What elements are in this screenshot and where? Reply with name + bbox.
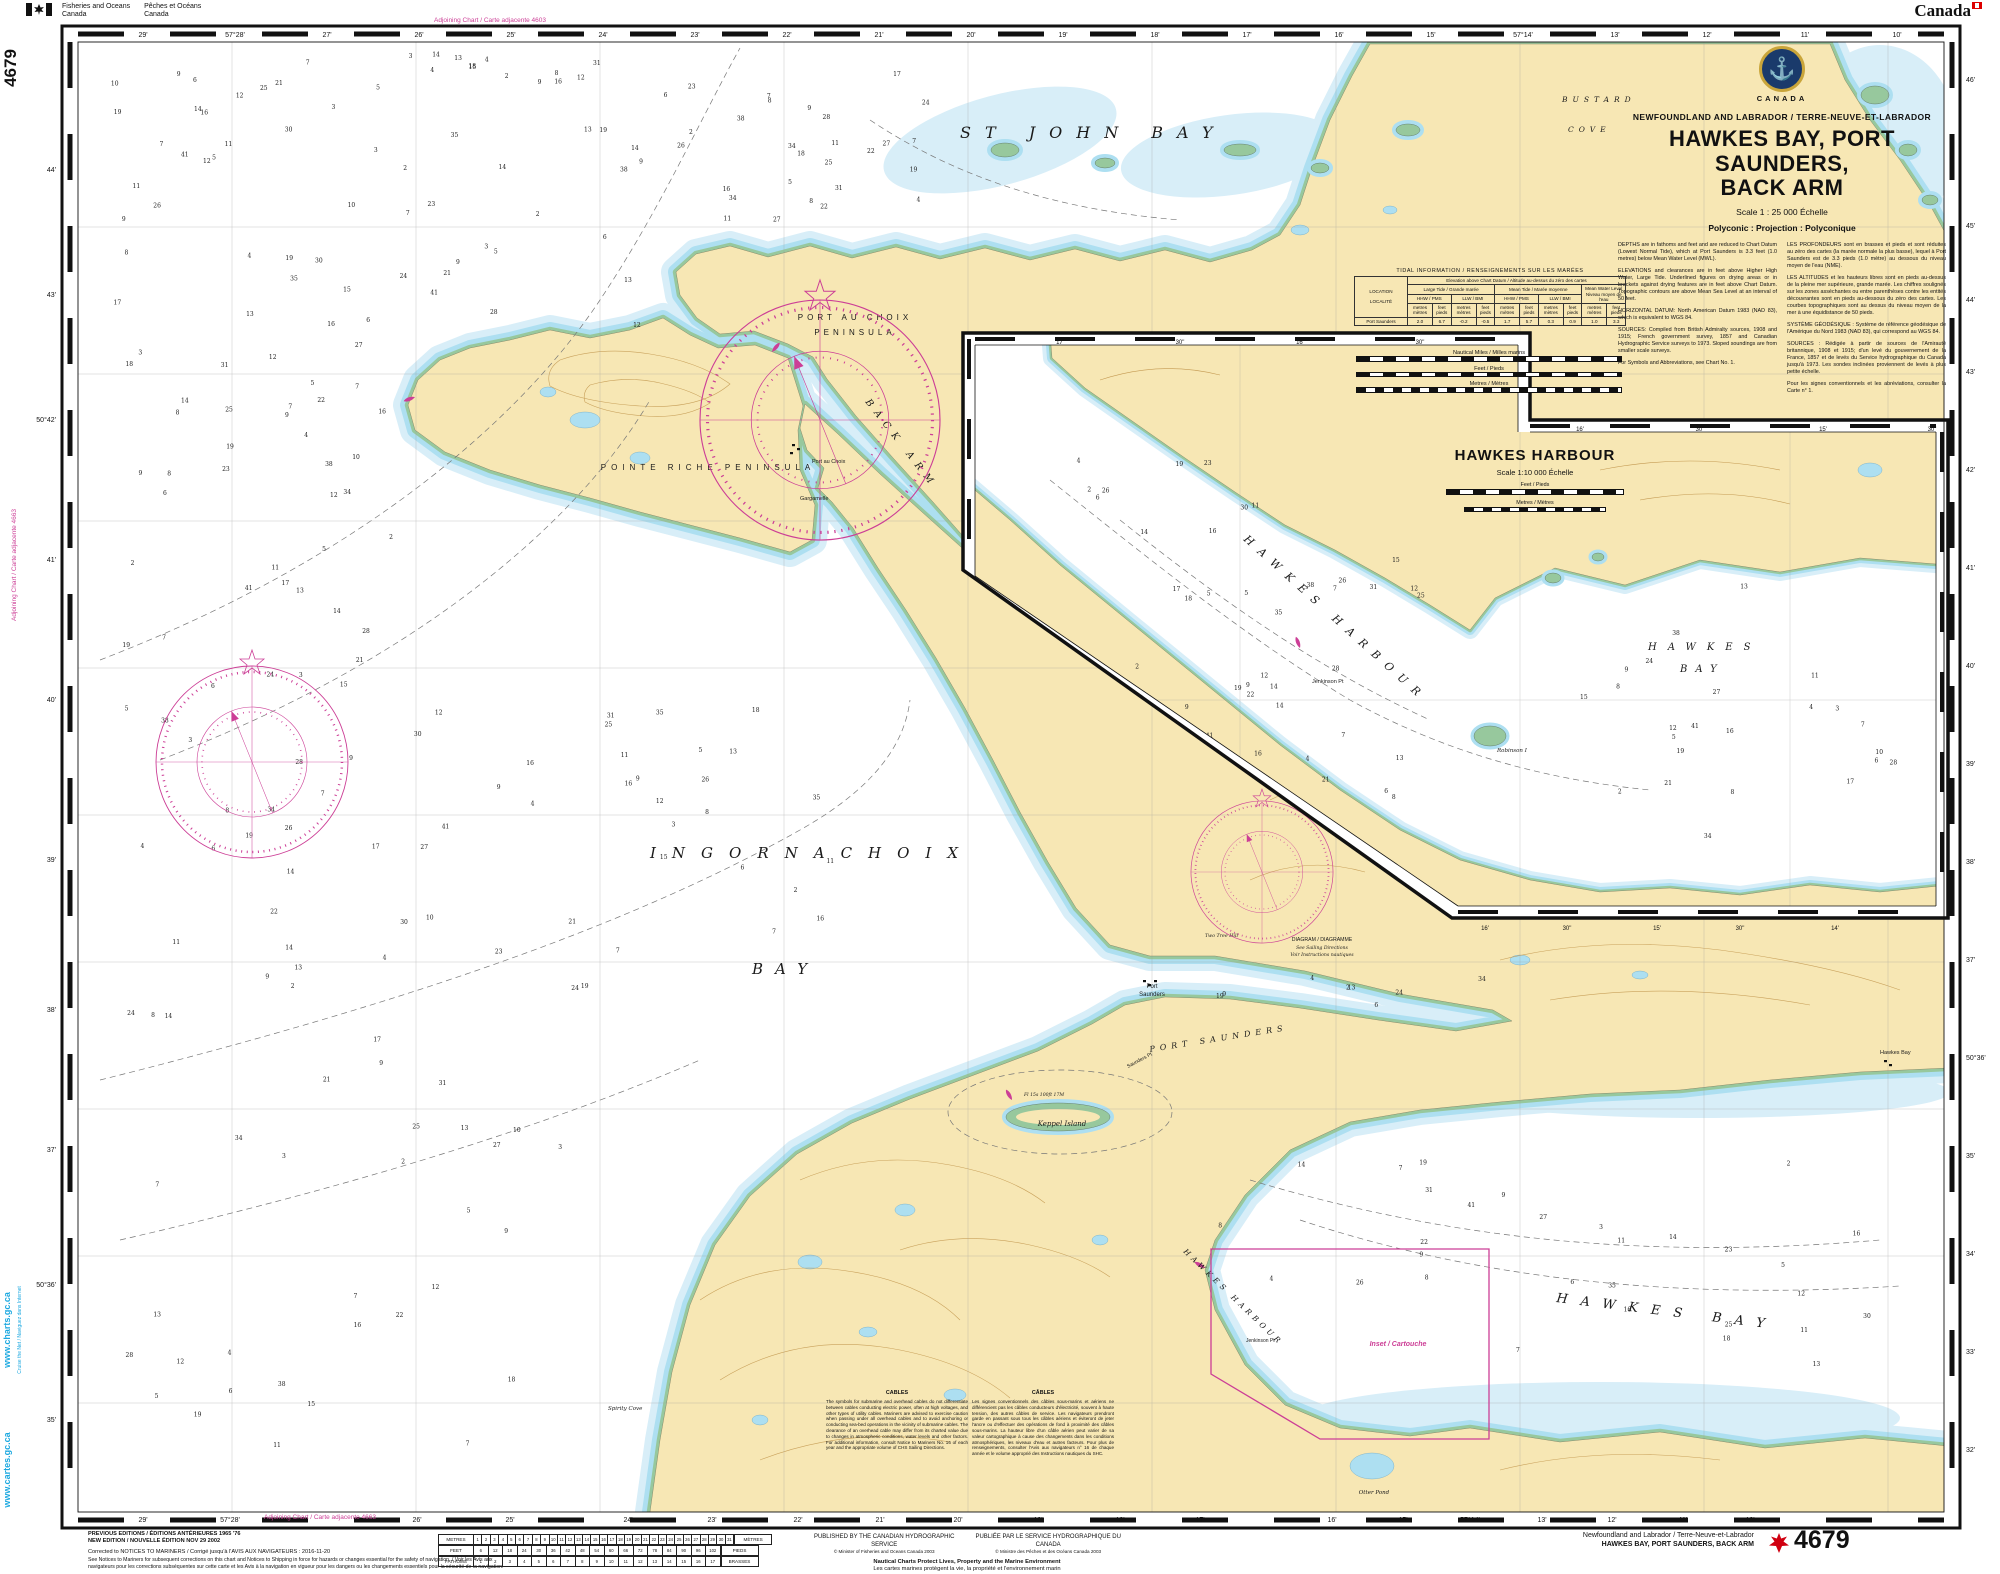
sounding: 18 <box>1723 1335 1731 1342</box>
sounding: 24 <box>1645 658 1653 665</box>
label-port: Port <box>1146 984 1157 990</box>
longitude-label: 24' <box>598 32 607 39</box>
copyright-en: © Minister of Fisheries and Oceans Canad… <box>812 1549 956 1555</box>
sounding: 7 <box>355 383 359 390</box>
conversion-value: 31 <box>726 1535 734 1544</box>
sounding: 25 <box>412 1123 420 1130</box>
tidal-value: 2.0 <box>1408 317 1433 325</box>
inset-scale: Scale 1:10 000 Échelle <box>1402 468 1668 477</box>
sounding: 14 <box>181 398 189 405</box>
sounding: 11 <box>1617 1237 1625 1244</box>
sounding: 18 <box>1184 595 1192 602</box>
sounding: 14 <box>1298 1162 1306 1169</box>
dept-name-fr: Pêches et Océans <box>144 3 201 10</box>
label-inset-jenkinson: Jenkinson Pt <box>1312 679 1344 685</box>
sounding: 27 <box>1539 1214 1547 1221</box>
sounding: 2 <box>689 129 693 136</box>
sounding: 8 <box>705 809 709 816</box>
unit-m: metres mètres <box>1495 304 1520 318</box>
sounding: 14 <box>1140 529 1148 536</box>
longitude-label: 12' <box>1607 1517 1616 1524</box>
unit-m: metres mètres <box>1538 304 1563 318</box>
longitude-label: 25' <box>506 32 515 39</box>
tidal-elevation-header: Elevation above Chart Datum / Altitude a… <box>1408 277 1626 285</box>
sounding: 11 <box>1811 673 1819 680</box>
label-otter-pond: Otter Pond <box>1359 1490 1390 1496</box>
sounding: 5 <box>1244 590 1248 597</box>
latitude-label: 41' <box>47 557 56 564</box>
tidal-location-header: LOCATIONLOCALITÉ <box>1355 277 1408 318</box>
sounding: 13 <box>1396 755 1404 762</box>
sounding: 5 <box>1207 591 1211 598</box>
sounding: 24 <box>266 672 274 679</box>
sounding: 3 <box>484 244 488 251</box>
note-symbols: For Symbols and Abbreviations, see Chart… <box>1618 360 1777 367</box>
sounding: 27 <box>420 844 428 851</box>
inset-coordinate-label: 30" <box>1736 926 1745 932</box>
sounding: 22 <box>820 204 828 211</box>
sounding: 12 <box>330 492 338 499</box>
tidal-value: 1.7 <box>1495 317 1520 325</box>
sounding: 26 <box>285 825 293 832</box>
tidal-value: 0.9 <box>1563 317 1582 325</box>
latitude-label: 39' <box>47 857 56 864</box>
conversion-value: 11 <box>619 1557 634 1566</box>
sounding: 22 <box>867 148 875 155</box>
note-depths: DEPTHS are in fathoms and feet and are r… <box>1618 242 1777 263</box>
sounding: 6 <box>1875 758 1879 765</box>
sounding: 4 <box>485 57 489 64</box>
footer-chart-number: 4679 <box>1794 1526 1850 1555</box>
conversion-value: 18 <box>503 1546 518 1555</box>
sounding: 7 <box>321 790 325 797</box>
conversion-value: 22 <box>650 1535 658 1544</box>
sounding: 7 <box>306 60 310 67</box>
sounding: 9 <box>138 470 142 477</box>
conversion-value: 5 <box>532 1557 547 1566</box>
sounding: 27 <box>1713 689 1721 696</box>
sounding: 26 <box>1102 488 1110 495</box>
tidal-value: 1.0 <box>1582 317 1607 325</box>
sounding: 7 <box>406 210 410 217</box>
longitude-label: 16' <box>1334 32 1343 39</box>
longitude-label: 26' <box>414 32 423 39</box>
dept-name-en: Fisheries and Oceans <box>62 3 130 10</box>
sounding: 6 <box>163 490 167 497</box>
sounding: 16 <box>1853 1231 1861 1238</box>
sounding: 38 <box>1672 630 1680 637</box>
sounding: 16 <box>816 915 824 922</box>
sounding: 5 <box>376 85 380 92</box>
title-country: CANADA <box>1618 94 1946 103</box>
sounding: 35 <box>451 132 459 139</box>
sounding: 3 <box>558 1144 562 1151</box>
inset-coordinate-label: 16' <box>1481 926 1489 932</box>
conversion-value: 60 <box>605 1546 620 1555</box>
sounding: 10 <box>1875 749 1883 756</box>
longitude-label: 13' <box>1537 1517 1546 1524</box>
sounding: 13 <box>153 1312 161 1319</box>
conversion-unit-label-fr: PIEDS <box>721 1545 759 1556</box>
sounding: 25 <box>260 85 268 92</box>
longitude-label: 21' <box>875 1517 884 1524</box>
conversion-unit-label: FATHOMS <box>438 1556 474 1567</box>
conversion-value: 6 <box>547 1557 562 1566</box>
sounding: 4 <box>248 252 252 259</box>
note-signes: Pour les signes conventionnels et les ab… <box>1787 381 1946 395</box>
latitude-label: 44' <box>47 167 56 174</box>
tidal-mwl: Mean Water LevelNiveau moyen de l'eau <box>1582 285 1626 304</box>
longitude-label: 21' <box>874 32 883 39</box>
sounding: 11 <box>1252 502 1260 509</box>
inset-coordinate-label: 30" <box>1696 427 1705 433</box>
sounding: 4 <box>141 843 145 850</box>
sounding: 18 <box>797 151 805 158</box>
longitude-label: 57°14' <box>1513 31 1533 39</box>
conversion-value: 16 <box>692 1557 707 1566</box>
sounding: 7 <box>466 1440 470 1447</box>
tidal-hhw-1: HHW / PMS <box>1408 294 1452 303</box>
sounding: 14 <box>333 608 341 615</box>
sounding: 41 <box>442 823 450 830</box>
longitude-label: 23' <box>690 32 699 39</box>
sounding: 28 <box>126 1352 134 1359</box>
sounding: 5 <box>1781 1262 1785 1269</box>
tidal-value: 3.3 <box>1607 317 1626 325</box>
sounding: 17 <box>1846 778 1854 785</box>
conversion-value: 12 <box>634 1557 649 1566</box>
sounding: 24 <box>400 273 408 280</box>
sounding: 9 <box>1502 1192 1506 1199</box>
sounding: 12 <box>236 93 244 100</box>
inset-title-block: HAWKES HARBOUR Scale 1:10 000 Échelle Fe… <box>1402 447 1668 512</box>
label-pac-peninsula-2: PENINSULA <box>814 328 895 337</box>
scale-bars: Nautical Miles / Milles marins Feet / Pi… <box>1356 346 1622 393</box>
cables-title-en: CABLES <box>826 1390 968 1397</box>
canada-flag-icon <box>26 3 52 16</box>
sounding: 13 <box>624 277 632 284</box>
sounding: 28 <box>490 309 498 316</box>
footer-chart-id: Newfoundland and Labrador / Terre-Neuve-… <box>1430 1531 1754 1549</box>
sounding: 16 <box>1726 728 1734 735</box>
label-inset-bay-2: BAY <box>1679 664 1725 675</box>
border-labels-left: 44'43'50°42'41'40'39'38'37'50°36'35' <box>36 167 56 1424</box>
sounding: 17 <box>373 1037 381 1044</box>
sounding: 15 <box>1580 694 1588 701</box>
latitude-label: 40' <box>1966 663 1975 670</box>
sounding: 27 <box>773 216 781 223</box>
sounding: 16 <box>327 321 335 328</box>
sounding: 12 <box>633 322 641 329</box>
sounding: 11 <box>724 216 732 223</box>
latitude-label: 32' <box>1966 1447 1975 1454</box>
dept-name-fr-2: Canada <box>144 11 169 18</box>
sounding: 14 <box>631 145 639 152</box>
sounding: 5 <box>788 179 792 186</box>
conversion-value: 11 <box>558 1535 566 1544</box>
sounding: 30 <box>1240 504 1248 511</box>
sounding: 34 <box>1478 976 1486 983</box>
motto-fr: Les cartes marines protègent la vie, la … <box>812 1566 1122 1573</box>
sounding: 12 <box>577 74 585 81</box>
sounding: 26 <box>701 777 709 784</box>
sounding: 11 <box>271 564 279 571</box>
sounding: 8 <box>124 250 128 257</box>
longitude-label: 16' <box>1327 1517 1336 1524</box>
sounding: 35 <box>290 276 298 283</box>
sounding: 15 <box>1392 557 1400 564</box>
conversion-value: 13 <box>648 1557 663 1566</box>
label-inset-robinson: Robinson I <box>1496 748 1528 754</box>
conversion-value: 17 <box>608 1535 616 1544</box>
conversion-value: 2 <box>489 1557 504 1566</box>
conversion-value: 7 <box>524 1535 532 1544</box>
sounding: 6 <box>1096 494 1100 501</box>
note-profondeurs: LES PROFONDEURS sont en brasses et pieds… <box>1787 242 1946 270</box>
sounding: 35 <box>813 795 821 802</box>
sounding: 7 <box>1861 722 1865 729</box>
conversion-value: 9 <box>541 1535 549 1544</box>
conversion-value: 24 <box>518 1546 533 1555</box>
conversion-value: 3 <box>491 1535 499 1544</box>
conversion-value: 42 <box>561 1546 576 1555</box>
sounding: 8 <box>1731 789 1735 796</box>
note-geodesique: SYSTÈME GÉODÉSIQUE : Système de référenc… <box>1787 322 1946 336</box>
sounding: 6 <box>211 683 215 690</box>
longitude-label: 19' <box>1058 32 1067 39</box>
latitude-label: 37' <box>1966 957 1975 964</box>
label-bustard-cove: COVE <box>1568 125 1611 134</box>
sounding: 11 <box>1800 1327 1808 1334</box>
conversion-value: 17 <box>706 1557 721 1566</box>
sounding: 9 <box>379 1060 383 1067</box>
sounding: 3 <box>188 737 192 744</box>
longitude-label: 11' <box>1679 1517 1688 1524</box>
sounding: 9 <box>285 412 289 419</box>
latitude-label: 43' <box>47 292 56 299</box>
label-hawkes-town: Hawkes Bay <box>1880 1050 1911 1056</box>
sounding: 22 <box>270 909 278 916</box>
sounding: 7 <box>1399 1165 1403 1172</box>
sounding: 16 <box>625 781 633 788</box>
sounding: 9 <box>456 259 460 266</box>
inset-metres-bar <box>1464 507 1606 513</box>
sounding: 38 <box>620 166 628 173</box>
notes-english: DEPTHS are in fathoms and feet and are r… <box>1618 242 1777 400</box>
dept-name-en-2: Canada <box>62 11 87 18</box>
sounding: 9 <box>504 1228 508 1235</box>
sounding: 34 <box>729 195 737 202</box>
sounding: 19 <box>122 642 130 649</box>
latitude-label: 35' <box>47 1417 56 1424</box>
longitude-label: 18' <box>1150 32 1159 39</box>
sounding: 7 <box>354 1293 358 1300</box>
conversion-value: 3 <box>503 1557 518 1566</box>
sounding: 19 <box>285 255 293 262</box>
conversion-value: 15 <box>591 1535 599 1544</box>
chart-scale: Scale 1 : 25 000 Échelle <box>1618 207 1946 217</box>
sounding: 7 <box>155 1182 159 1189</box>
sounding: 31 <box>221 362 229 369</box>
cables-body-en: The symbols for submarine and overhead c… <box>826 1399 968 1451</box>
sounding: 11 <box>273 1442 281 1449</box>
conversion-value: 16 <box>600 1535 608 1544</box>
sounding: 19 <box>1677 748 1685 755</box>
sounding: 31 <box>607 713 615 720</box>
sounding: 12 <box>269 354 277 361</box>
conversion-value: 54 <box>590 1546 605 1555</box>
publisher-block: PUBLISHED BY THE CANADIAN HYDROGRAPHIC S… <box>812 1534 1122 1573</box>
sounding: 23 <box>688 84 696 91</box>
conversion-value: 4 <box>518 1557 533 1566</box>
inset-feet-bar <box>1446 489 1624 495</box>
sounding: 19 <box>1234 685 1242 692</box>
sounding: 23 <box>428 201 436 208</box>
sounding: 3 <box>672 822 676 829</box>
sounding: 26 <box>677 142 685 149</box>
sounding: 9 <box>349 755 353 762</box>
conversion-value: 5 <box>508 1535 516 1544</box>
chart-title-line-1: HAWKES BAY, PORT SAUNDERS, <box>1618 127 1946 176</box>
longitude-label: 20' <box>966 32 975 39</box>
conversion-value: 7 <box>561 1557 576 1566</box>
sounding: 8 <box>1616 684 1620 691</box>
sounding: 13 <box>584 127 592 134</box>
sounding: 18 <box>125 361 133 368</box>
conversion-cells: 1234567891011121314151617181920212223242… <box>474 1534 734 1545</box>
sounding: 23 <box>495 948 503 955</box>
sounding: 5 <box>311 380 315 387</box>
label-diagram-3: Voir Instructions nautiques <box>1290 952 1354 958</box>
conversion-value: 48 <box>576 1546 591 1555</box>
sounding: 38 <box>325 461 333 468</box>
conversion-unit-label: METRES <box>438 1534 474 1545</box>
web-url-fr: www.cartes.gc.ca <box>2 1431 12 1508</box>
conversion-value: 24 <box>667 1535 675 1544</box>
inset-coordinate-label: 14' <box>1831 926 1839 932</box>
sounding: 28 <box>1890 760 1898 767</box>
conversion-value: 26 <box>684 1535 692 1544</box>
sounding: 30 <box>1863 1313 1871 1320</box>
sounding: 30 <box>315 257 323 264</box>
label-saunders: Saunders <box>1139 992 1165 998</box>
canada-wordmark: Canada <box>1914 1 1982 21</box>
adjoining-chart-top: Adjoining Chart / Carte adjacente 4603 <box>434 17 546 24</box>
published-fr: PUBLIÉE PAR LE SERVICE HYDROGRAPHIQUE DU… <box>974 1534 1122 1549</box>
sounding: 23 <box>1204 460 1212 467</box>
conversion-row: FATHOMS1234567891011121314151617BRASSES <box>438 1556 772 1567</box>
sounding: 15 <box>469 64 477 71</box>
sounding: 16 <box>1254 750 1262 757</box>
sounding: 16 <box>378 409 386 416</box>
sounding: 5 <box>699 747 703 754</box>
sounding: 2 <box>1346 984 1350 991</box>
label-inset-bay-1: HAWKES <box>1647 642 1761 653</box>
unit-m: metres mètres <box>1582 304 1607 318</box>
sounding: 21 <box>323 1077 331 1084</box>
conversion-value: 29 <box>709 1535 717 1544</box>
sounding: 18 <box>752 707 760 714</box>
conversion-value: 90 <box>677 1546 692 1555</box>
sounding: 4 <box>1077 458 1081 465</box>
conversion-value: 4 <box>499 1535 507 1544</box>
sounding: 28 <box>823 114 831 121</box>
conversion-value: 20 <box>633 1535 641 1544</box>
conversion-value: 6 <box>474 1546 489 1555</box>
sounding: 9 <box>1624 667 1628 674</box>
sounding: 15 <box>343 286 351 293</box>
sounding: 2 <box>389 534 393 541</box>
adjoining-chart-left: Adjoining Chart / Carte adjacente 4663 <box>11 509 18 621</box>
label-st-john-bay: ST JOHN BAY <box>960 123 1227 142</box>
sounding: 10 <box>426 915 434 922</box>
sounding: 2 <box>401 1159 405 1166</box>
latitude-label: 39' <box>1966 761 1975 768</box>
nautical-chart-page: 7123182591431522816271141934613224915387… <box>0 0 2000 1574</box>
latitude-label: 45' <box>1966 223 1975 230</box>
inset-coordinate-label: 15' <box>1653 926 1661 932</box>
conversion-cells: 6121824303642485460667278849096102 <box>474 1545 721 1556</box>
longitude-label: 22' <box>782 32 791 39</box>
label-diagram-2: See Sailing Directions <box>1296 945 1348 951</box>
chart-title-line-2: BACK ARM <box>1618 176 1946 201</box>
label-gargamelle: Gargamelle <box>800 496 828 502</box>
conversion-value: 13 <box>575 1535 583 1544</box>
label-keppel-light: Fl 15s 100ft 17M <box>1023 1092 1064 1098</box>
sounding: 14 <box>1270 683 1278 690</box>
label-inset-cartouche: Inset / Cartouche <box>1370 1341 1427 1348</box>
chart-projection: Polyconic : Projection : Polyconique <box>1618 223 1946 233</box>
sounding: 11 <box>133 183 141 190</box>
sounding: 3 <box>1835 706 1839 713</box>
sounding: 28 <box>1332 666 1340 673</box>
sounding: 7 <box>160 141 164 148</box>
longitude-label: 19' <box>1033 1517 1042 1524</box>
sounding: 21 <box>1322 776 1330 783</box>
sounding: 7 <box>912 138 916 145</box>
sounding: 28 <box>362 628 370 635</box>
sounding: 10 <box>348 202 356 209</box>
sounding: 9 <box>497 784 501 791</box>
sounding: 3 <box>374 147 378 154</box>
title-region: NEWFOUNDLAND AND LABRADOR / TERRE-NEUVE-… <box>1618 112 1946 122</box>
tidal-station: Port Saunders <box>1355 317 1408 325</box>
sounding: 23 <box>1725 1247 1733 1254</box>
sounding: 13 <box>294 964 302 971</box>
sounding: 4 <box>531 801 535 808</box>
tidal-value: -0.2 <box>1451 317 1476 325</box>
sounding: 24 <box>922 99 930 106</box>
sounding: 19 <box>581 983 589 990</box>
title-block: ⚓ CANADA NEWFOUNDLAND AND LABRADOR / TER… <box>1618 46 1946 400</box>
sounding: 11 <box>831 140 839 147</box>
sounding: 26 <box>1339 577 1347 584</box>
longitude-label: 10' <box>1745 1517 1754 1524</box>
sounding: 35 <box>656 709 664 716</box>
cables-title-fr: CÂBLES <box>972 1390 1114 1397</box>
sounding: 30 <box>400 919 408 926</box>
sounding: 19 <box>114 109 122 116</box>
sounding: 16 <box>1209 528 1217 535</box>
conversion-value: 8 <box>576 1557 591 1566</box>
sounding: 13 <box>729 748 737 755</box>
latitude-label: 35' <box>1966 1153 1975 1160</box>
sounding: 9 <box>807 105 811 112</box>
note-altitudes: LES ALTITUDES et les hauteurs libres son… <box>1787 275 1946 317</box>
unit-ft: feet pieds <box>1476 304 1495 318</box>
tidal-title: TIDAL INFORMATION / RENSEIGNEMENTS SUR L… <box>1354 268 1626 274</box>
maple-leaf-icon <box>1768 1532 1790 1554</box>
